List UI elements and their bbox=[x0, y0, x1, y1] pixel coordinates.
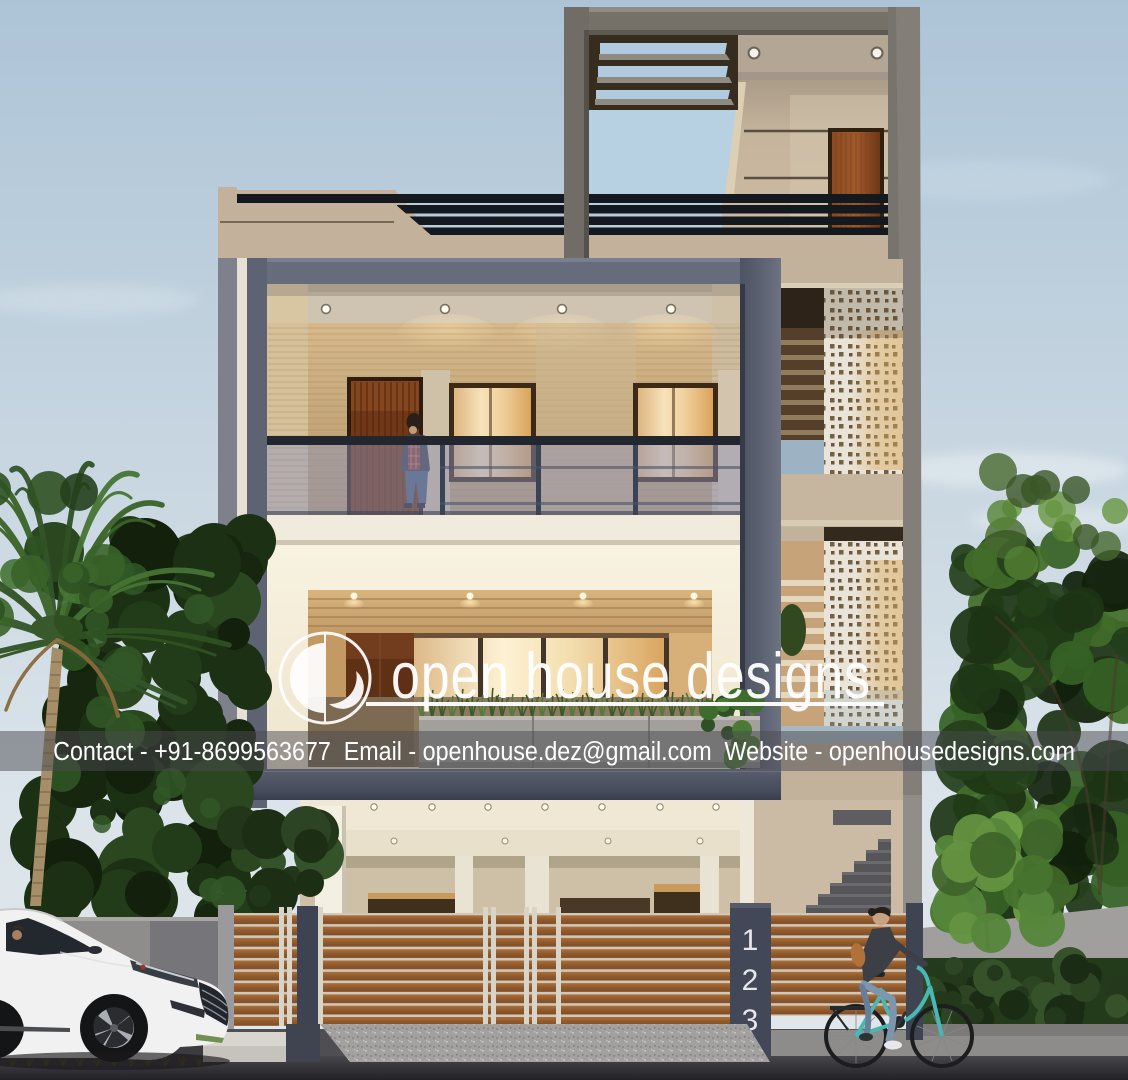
svg-text:Contact - +91-8699563677 Emai: Contact - +91-8699563677 Email - openhou… bbox=[53, 738, 1075, 766]
svg-text:1: 1 bbox=[742, 924, 759, 957]
svg-text:open house designs: open house designs bbox=[391, 641, 871, 713]
svg-text:2: 2 bbox=[742, 964, 759, 997]
